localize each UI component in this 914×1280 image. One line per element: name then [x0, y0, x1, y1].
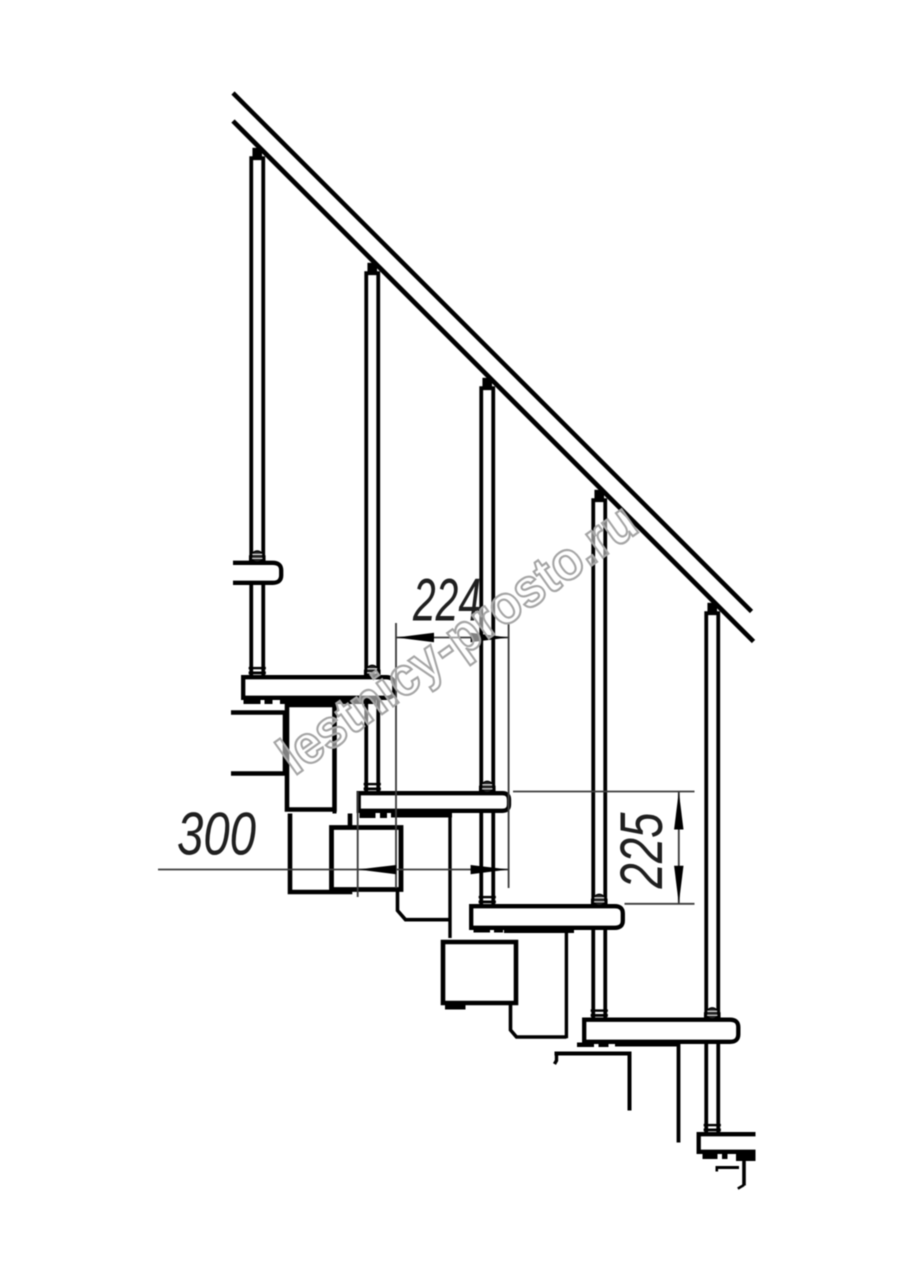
svg-text:225: 225	[608, 812, 675, 889]
svg-text:300: 300	[177, 801, 256, 868]
